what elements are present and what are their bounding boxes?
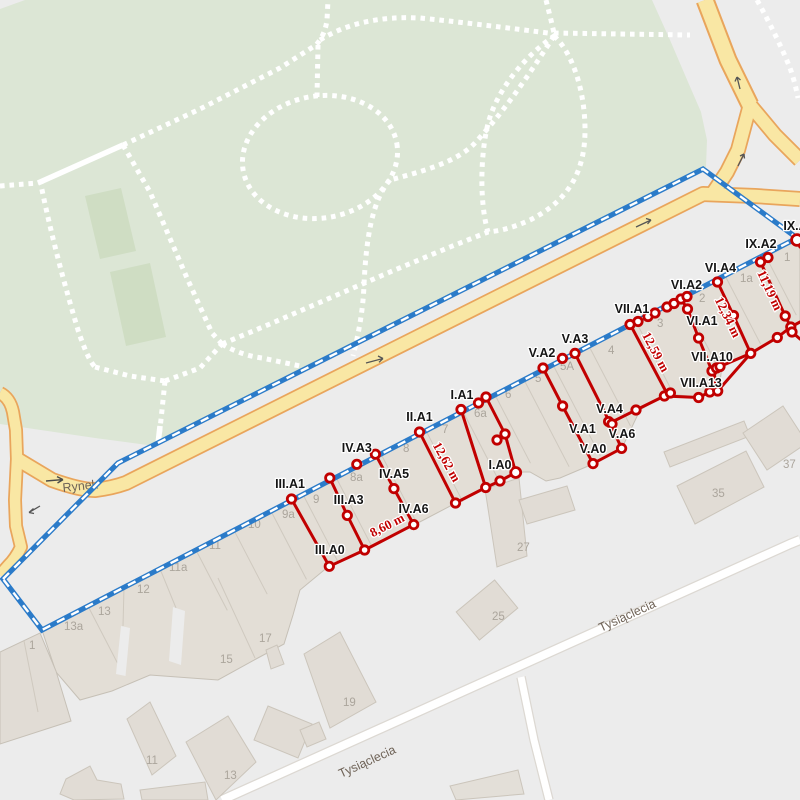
svg-text:V.A1: V.A1 [569, 422, 596, 436]
svg-text:8a: 8a [350, 472, 363, 484]
svg-text:11: 11 [146, 755, 158, 767]
svg-text:IX.A1: IX.A1 [783, 219, 800, 233]
svg-text:9: 9 [313, 494, 319, 506]
svg-text:VII.A13: VII.A13 [680, 376, 722, 390]
svg-text:19: 19 [343, 697, 356, 709]
svg-text:1a: 1a [740, 273, 753, 285]
svg-text:37: 37 [783, 459, 796, 471]
svg-text:17: 17 [259, 633, 272, 645]
svg-text:27: 27 [517, 542, 530, 554]
svg-text:13a: 13a [64, 621, 84, 633]
svg-text:V.A4: V.A4 [596, 402, 623, 416]
svg-text:IV.A5: IV.A5 [379, 467, 409, 481]
svg-text:9a: 9a [282, 509, 295, 521]
svg-text:35: 35 [712, 488, 725, 500]
svg-text:4: 4 [608, 345, 615, 357]
svg-text:6a: 6a [474, 408, 487, 420]
svg-text:IV.A3: IV.A3 [342, 441, 372, 455]
svg-text:3: 3 [657, 318, 663, 330]
svg-text:1: 1 [784, 252, 790, 264]
svg-text:I.A1: I.A1 [451, 388, 474, 402]
svg-text:I.A0: I.A0 [489, 458, 512, 472]
svg-text:III.A0: III.A0 [315, 543, 345, 557]
svg-text:IV.A6: IV.A6 [398, 502, 428, 516]
svg-text:III.A3: III.A3 [334, 493, 364, 507]
svg-text:2: 2 [699, 293, 705, 305]
svg-text:V.A0: V.A0 [580, 442, 607, 456]
svg-text:13: 13 [224, 770, 237, 782]
svg-text:VI.A1: VI.A1 [686, 314, 717, 328]
svg-text:VI.A2: VI.A2 [671, 278, 702, 292]
svg-text:7: 7 [442, 424, 448, 436]
svg-text:VII.A1: VII.A1 [615, 302, 650, 316]
svg-text:12: 12 [137, 584, 150, 596]
svg-text:13: 13 [98, 606, 111, 618]
svg-text:V.A3: V.A3 [562, 332, 589, 346]
svg-text:VII.A10: VII.A10 [691, 350, 733, 364]
svg-text:1: 1 [29, 640, 35, 652]
svg-text:25: 25 [492, 611, 505, 623]
svg-text:II.A1: II.A1 [406, 410, 432, 424]
svg-text:V.A2: V.A2 [529, 346, 556, 360]
svg-text:VI.A4: VI.A4 [705, 261, 736, 275]
svg-text:III.A1: III.A1 [275, 477, 305, 491]
svg-text:V.A6: V.A6 [609, 427, 636, 441]
svg-text:15: 15 [220, 654, 233, 666]
svg-text:IX.A2: IX.A2 [745, 237, 776, 251]
